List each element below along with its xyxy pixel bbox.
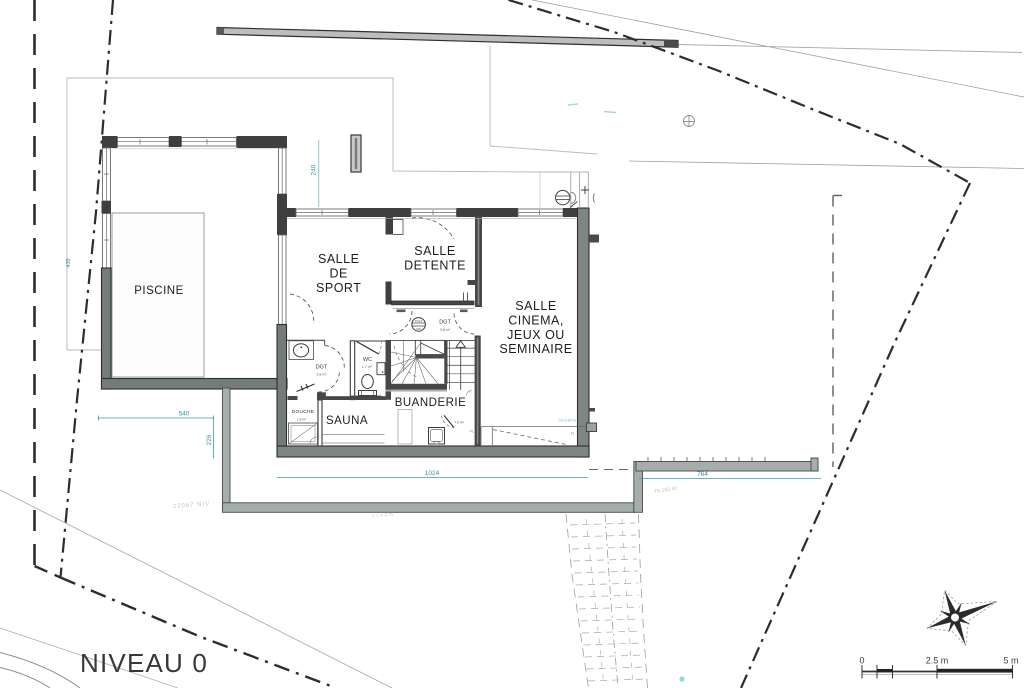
svg-text:435: 435: [66, 258, 72, 267]
svg-text:SEMINAIRE: SEMINAIRE: [499, 342, 572, 356]
svg-text:DGT: DGT: [439, 320, 451, 326]
svg-text:3.8 m²: 3.8 m²: [316, 373, 327, 377]
svg-text:3.8 m²: 3.8 m²: [440, 328, 451, 332]
svg-text:SALLE: SALLE: [515, 299, 556, 313]
svg-text:5 m: 5 m: [1003, 656, 1018, 666]
svg-text:240: 240: [311, 164, 318, 175]
svg-text:DE: DE: [330, 267, 348, 281]
svg-text:NIVEAU 0: NIVEAU 0: [80, 648, 208, 678]
svg-text:JEUX OU: JEUX OU: [507, 328, 565, 342]
svg-text:226: 226: [206, 434, 213, 445]
svg-text:PISCINE: PISCINE: [134, 285, 184, 297]
svg-text:1.7 m²: 1.7 m²: [362, 365, 373, 369]
svg-text:PULS: PULS: [415, 319, 422, 323]
svg-text:SALLE: SALLE: [318, 252, 359, 266]
svg-text:DOUCHE: DOUCHE: [292, 409, 315, 415]
svg-text:CH 0.90 m: CH 0.90 m: [558, 419, 575, 423]
svg-text:540: 540: [179, 411, 190, 418]
svg-text:FL: FL: [571, 432, 575, 436]
svg-text:FL: FL: [470, 430, 474, 434]
svg-text:764: 764: [697, 471, 708, 478]
svg-text:1024: 1024: [425, 470, 440, 477]
svg-text:CINEMA,: CINEMA,: [508, 314, 564, 328]
svg-text:BUANDERIE: BUANDERIE: [395, 397, 467, 409]
svg-text:SPORT: SPORT: [316, 281, 361, 295]
svg-text:WC: WC: [363, 357, 372, 363]
svg-text:SALLE: SALLE: [414, 244, 455, 258]
svg-text:DGT: DGT: [316, 365, 328, 371]
svg-text:0: 0: [859, 656, 864, 666]
svg-text:2.5 m: 2.5 m: [926, 656, 949, 666]
svg-text:1.8 m²: 1.8 m²: [297, 418, 307, 422]
svg-text:DETENTE: DETENTE: [404, 258, 466, 272]
svg-text:600: 600: [416, 327, 421, 331]
svg-text:7.9 m²: 7.9 m²: [454, 421, 464, 425]
svg-text:SAUNA: SAUNA: [326, 415, 368, 427]
